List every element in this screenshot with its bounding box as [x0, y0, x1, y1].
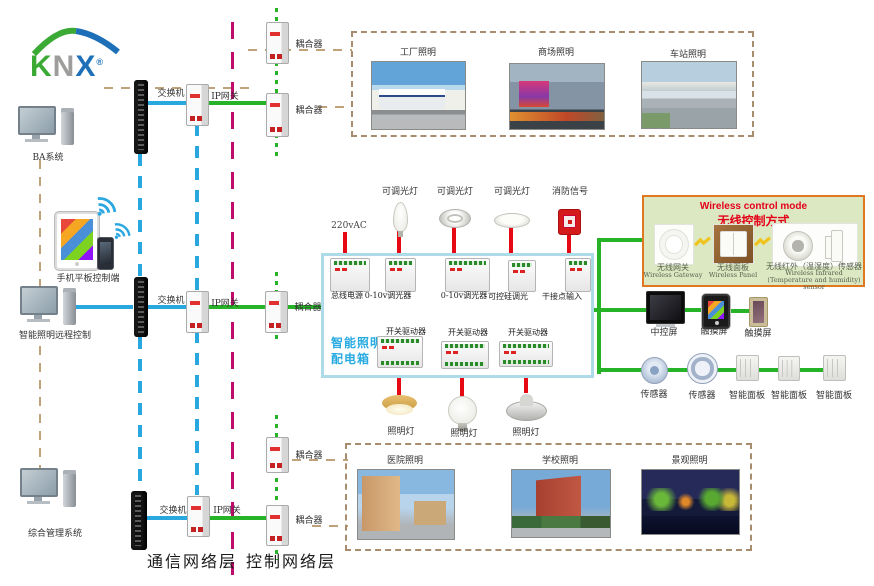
lightning-icon: [694, 235, 711, 249]
candle-lamp-icon: [393, 202, 408, 232]
bus-line: [597, 238, 601, 374]
lan-line: [195, 331, 199, 495]
phone-icon: [97, 237, 114, 270]
sensor-icon: [687, 353, 718, 384]
coupler-module: [266, 437, 289, 473]
zone-label: 医院照明: [357, 453, 453, 466]
desktop-computer-icon: [18, 106, 74, 150]
switch-label: 交换机: [152, 293, 190, 306]
knx-lighting-system-diagram: KNX®: [0, 0, 874, 586]
tablet-icon: [55, 212, 99, 270]
ip-gateway-label: IP网关: [208, 503, 246, 516]
device-label: 传感器: [686, 388, 718, 401]
hospital-photo: [357, 469, 455, 540]
lan-line: [147, 101, 186, 105]
switch-actuator-module: [499, 341, 553, 367]
zone-label: 学校照明: [511, 453, 609, 466]
mall-photo: [509, 63, 605, 130]
load-label: 可调光灯: [493, 184, 531, 197]
bulb-lamp-icon: [448, 396, 477, 425]
device-label: 智能面板: [770, 388, 808, 401]
registered-mark: ®: [96, 57, 104, 67]
module-label: 可控硅调光: [485, 291, 531, 302]
monitor-icon: [20, 468, 58, 497]
wireless-title-en: Wireless control mode: [644, 201, 863, 212]
ba-system-label: BA系统: [18, 150, 78, 163]
bus-line: [208, 516, 266, 520]
zone-label: 工厂照明: [372, 45, 464, 58]
mains-power-label: 220vAC: [328, 221, 370, 231]
tv-screen-icon: [646, 291, 685, 324]
dry-contact-module: [565, 258, 591, 292]
dimmer-module: [445, 258, 490, 292]
bus-line: [601, 238, 646, 242]
load-label: 可调光灯: [381, 184, 419, 197]
ufo-lamp-icon: [382, 395, 417, 411]
link-line: [39, 346, 41, 468]
screen-label: 触摸屏: [696, 324, 732, 337]
factory-photo: [371, 61, 466, 130]
load-label: 可调光灯: [436, 184, 474, 197]
zone-label: 景观照明: [641, 453, 738, 466]
cabinet-name-line1: 智能照明: [331, 334, 383, 351]
wireless-device-label-en: Wireless Gateway: [642, 272, 704, 279]
dimmer-module: [385, 258, 416, 292]
pc-tower-icon: [63, 288, 76, 325]
network-switch-icon: [134, 80, 148, 154]
link-line: [39, 160, 41, 288]
coupler-label: 耦合器: [290, 448, 328, 461]
knx-logo: KNX®: [26, 26, 126, 88]
ip-gateway-label: IP网关: [206, 89, 244, 102]
smart-panel-icon: [823, 355, 846, 381]
coupler-module: [266, 22, 289, 64]
wireless-device-label-en: Wireless Infrared (Temperature and humid…: [766, 270, 862, 291]
school-photo: [511, 469, 611, 538]
smart-panel-icon: [778, 356, 800, 381]
module-label: 开关驱动器: [378, 326, 434, 337]
bus-power-module: [330, 258, 370, 292]
ctrl-layer-label: 控制网络层: [246, 548, 336, 572]
bus-line: [601, 368, 643, 372]
screen-label: 中控屏: [636, 325, 692, 338]
wireless-panel-icon: [713, 224, 754, 264]
fire-alarm-icon: [558, 209, 581, 235]
knx-letter-k: K: [30, 50, 53, 83]
coupler-module: [265, 291, 288, 333]
station-photo: [641, 61, 737, 129]
downlight-icon: [439, 209, 471, 228]
knx-wordmark: KNX®: [30, 50, 104, 84]
lan-line: [147, 516, 187, 520]
coupler-label: 耦合器: [290, 37, 328, 50]
lightning-icon: [754, 235, 771, 249]
zone-label: 车站照明: [641, 47, 735, 60]
ip-gateway-module: [187, 496, 210, 537]
network-switch-icon: [134, 277, 148, 337]
switch-actuator-module: [441, 341, 489, 369]
monitor-icon: [18, 106, 56, 135]
knx-letter-n: N: [53, 50, 76, 83]
coupler-label: 耦合器: [290, 513, 328, 526]
module-label: 0-10v调光器: [356, 290, 420, 301]
load-label: 消防信号: [551, 184, 589, 197]
network-switch-icon: [131, 491, 147, 550]
device-label: 智能面板: [728, 388, 766, 401]
wireless-device-label-en: Wireless Panel: [702, 272, 764, 279]
switch-actuator-module: [377, 336, 423, 368]
zone-label: 商场照明: [509, 45, 603, 58]
bus-line: [797, 368, 825, 372]
coupler-module: [266, 505, 289, 546]
framed-touchscreen-icon: [749, 297, 768, 327]
scr-dimmer-module: [508, 260, 536, 292]
desktop-computer-icon: [20, 286, 76, 330]
load-label: 照明灯: [384, 424, 418, 437]
desktop-computer-icon: [20, 468, 76, 512]
management-system-label: 综合管理系统: [10, 526, 100, 539]
pc-tower-icon: [61, 108, 74, 145]
cabinet-name-line2: 配电箱: [331, 350, 370, 367]
comm-layer-label: 通信网络层: [147, 548, 237, 572]
bus-line: [601, 308, 647, 312]
landscape-photo: [641, 469, 740, 535]
device-label: 智能面板: [815, 388, 853, 401]
wireless-control-box: Wireless control mode 无线控制方式 无线网关 Wirele…: [642, 195, 865, 287]
load-label: 照明灯: [447, 426, 481, 439]
coupler-module: [266, 93, 289, 137]
smart-panel-icon: [736, 355, 759, 381]
remote-control-label: 智能照明远程控制: [10, 328, 100, 341]
knx-letter-x: X: [75, 50, 96, 83]
panel-light-icon: [494, 213, 530, 228]
monitor-icon: [20, 286, 58, 315]
wireless-gateway-icon: [654, 224, 694, 265]
lan-line: [72, 305, 133, 309]
screen-label: 触摸屏: [744, 326, 772, 339]
module-label: 开关驱动器: [500, 327, 556, 338]
device-label: 传感器: [639, 387, 669, 400]
wireless-ir-sensor-icon: [772, 223, 858, 267]
ip-gateway-label: IP网关: [206, 296, 244, 309]
load-label: 照明灯: [509, 425, 543, 438]
sensor-icon: [641, 357, 668, 384]
mobile-terminal-label: 手机平板控制端: [48, 271, 128, 284]
reflector-lamp-icon: [506, 401, 547, 421]
coupler-label: 耦合器: [290, 103, 328, 116]
lan-line: [195, 124, 199, 291]
lan-line: [138, 154, 142, 277]
module-label: 干接点输入: [539, 291, 585, 302]
pc-tower-icon: [63, 470, 76, 507]
lan-line: [138, 337, 142, 490]
module-label: 开关驱动器: [440, 327, 496, 338]
switch-label: 交换机: [152, 86, 190, 99]
